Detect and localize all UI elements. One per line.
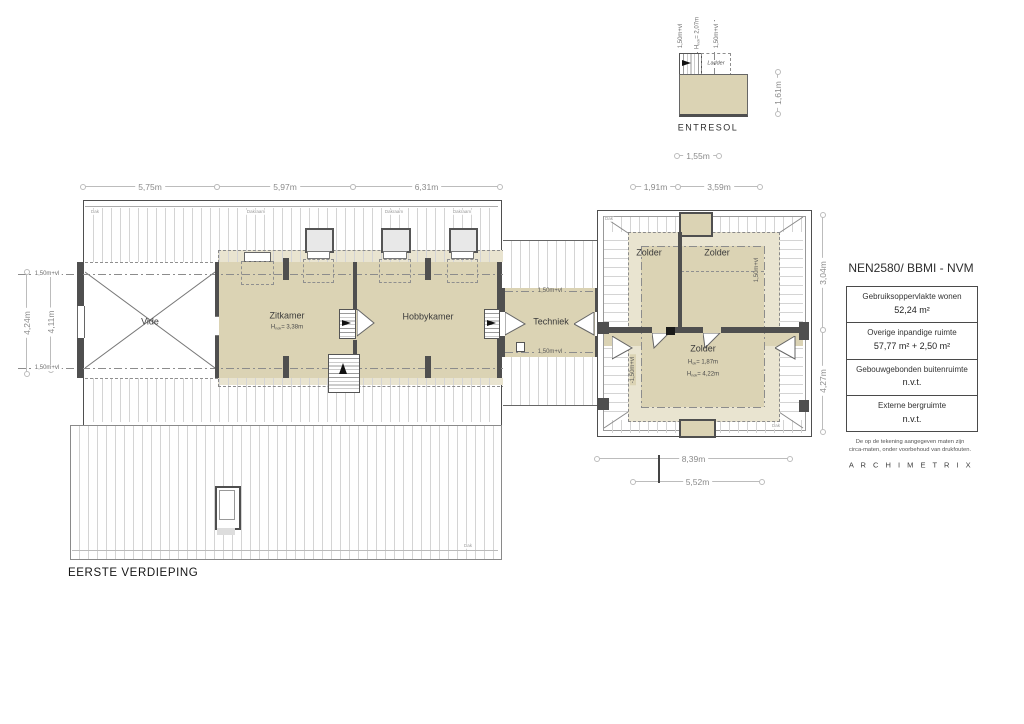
vide-label: Vide xyxy=(141,318,159,327)
zolder-main-label: Zolder xyxy=(690,345,716,354)
wall-segment xyxy=(598,398,609,410)
plan-title: EERSTE VERDIEPING xyxy=(68,567,198,579)
dimension-bottom-inner: 5,52m xyxy=(633,481,762,482)
roof-post xyxy=(283,356,289,378)
techniek-roof-lower xyxy=(503,357,597,406)
roof-window-dashed xyxy=(303,259,334,283)
chimney-base xyxy=(217,528,235,535)
roof-window-dashed xyxy=(447,259,478,283)
entresol-height-label: Hnok= 2,07m xyxy=(695,15,702,51)
vide-dashed-line xyxy=(85,378,218,379)
entresol-floor xyxy=(679,74,748,117)
table-row: Gebruiksoppervlakte wonen 52,24 m² xyxy=(847,287,977,323)
zitkamer-height-label: Hnok= 3,38m xyxy=(271,325,303,332)
floorplan-drawing: 1,50m+vl Hnok= 2,07m 1,50m+vl Ladder ENT… xyxy=(0,0,1024,724)
fixture-box xyxy=(516,342,525,352)
lower-roof xyxy=(70,425,502,560)
roof-window xyxy=(449,228,478,253)
roof-window xyxy=(381,228,411,253)
dimension-right-upper: 3,04m xyxy=(822,215,823,330)
brand-logo: A R C H I M E T R I X xyxy=(849,461,973,469)
vl-label-zolder-left: -1,50m+vl xyxy=(630,355,636,386)
vide-dashed-line xyxy=(85,262,218,263)
dakraam-label: Dakraam xyxy=(384,210,404,215)
techniek-label: Techniek xyxy=(533,318,569,327)
wall-segment xyxy=(799,322,809,340)
stair-direction-arrow xyxy=(682,60,691,66)
table-row: Overige inpandige ruimte 57,77 m² + 2,50… xyxy=(847,323,977,359)
roof-window-sill xyxy=(383,251,407,259)
stair-direction-arrow xyxy=(342,320,351,326)
row-value: n.v.t. xyxy=(849,413,975,427)
row-value: 57,77 m² + 2,50 m² xyxy=(849,340,975,354)
flue-box xyxy=(666,327,675,335)
dimension-top-3: 6,31m xyxy=(353,186,500,187)
dakraam-label: Dakraam xyxy=(452,210,472,215)
wall-opening xyxy=(215,316,219,336)
stair-direction-arrow xyxy=(487,320,496,326)
vl-label-left-bottom: 1,50m+vl xyxy=(33,365,62,371)
row-label: Externe bergruimte xyxy=(849,400,975,413)
vl-label-zolder-right: 1,50m+vl xyxy=(754,256,760,285)
entresol-width-dimension: 1,55m xyxy=(677,155,719,156)
dimension-top-1: 5,75m xyxy=(83,186,217,187)
disclaimer-line2: circa-maten, onder voorbehoud van drukfo… xyxy=(849,448,971,454)
zitkamer-label: Zitkamer xyxy=(269,312,304,321)
entresol-vl-label-left: 1,50m+vl xyxy=(678,22,684,51)
wall-segment xyxy=(799,400,809,412)
entresol-title: ENTRESOL xyxy=(678,124,739,133)
dimension-reference-tick xyxy=(658,455,660,483)
zolder-dividing-wall xyxy=(678,232,682,327)
roof-window-sill xyxy=(451,251,474,259)
dimension-topright-2: 3,59m xyxy=(678,186,760,187)
door-swing xyxy=(574,312,595,336)
nen2580-table: Gebruiksoppervlakte wonen 52,24 m² Overi… xyxy=(846,286,978,432)
roof-window xyxy=(305,228,334,253)
roof-window-dashed xyxy=(241,261,274,285)
entresol-vl-label-right: 1,50m+vl xyxy=(714,22,720,51)
table-row: Gebouwgebonden buitenruimte n.v.t. xyxy=(847,360,977,396)
roof-post xyxy=(425,258,431,280)
dakraam-label: Dakraam xyxy=(246,210,266,215)
chimney-inner xyxy=(219,490,235,520)
roof-window-dashed xyxy=(379,259,411,283)
dak-label: Dak xyxy=(771,424,781,429)
zolder-tr-label: Zolder xyxy=(704,249,730,258)
dimension-left-outer: 4,24m xyxy=(26,272,27,374)
legend-title: NEN2580/ BBMI - NVM xyxy=(848,262,973,274)
wall-segment xyxy=(598,322,609,334)
roof-eave-line xyxy=(85,206,498,207)
ladder-label: Ladder xyxy=(707,61,724,67)
zolder-tl-label: Zolder xyxy=(636,249,662,258)
height-line-150 xyxy=(641,407,764,408)
dimension-right-lower: 4,27m xyxy=(822,330,823,432)
vl-label-techniek-bottom: 1,50m+vl xyxy=(536,349,565,355)
dak-label: Dak xyxy=(604,217,614,222)
roof-window-sill xyxy=(307,251,330,259)
door-swing xyxy=(505,312,526,336)
row-label: Gebruiksoppervlakte wonen xyxy=(849,291,975,304)
row-value: 52,24 m² xyxy=(849,304,975,318)
row-label: Overige inpandige ruimte xyxy=(849,327,975,340)
dak-label: Dak xyxy=(463,544,473,549)
dimension-top-2: 5,97m xyxy=(217,186,353,187)
zolder-height-label-2: Hnok= 4,22m xyxy=(687,372,719,379)
zolder-height-label-1: Hok= 1,87m xyxy=(688,360,718,367)
dak-label: Dak xyxy=(90,210,100,215)
techniek-roof-upper xyxy=(503,240,597,289)
dimension-left-inner: 4,11m xyxy=(50,274,51,370)
disclaimer-line1: De op de tekening aangegeven maten zijn xyxy=(856,440,965,446)
dimension-topright-1: 1,91m xyxy=(633,186,678,187)
zolder-dormer-top xyxy=(679,212,713,237)
dimension-bottom-outer: 8,39m xyxy=(597,458,790,459)
entresol-depth-dimension: 1,61m xyxy=(777,72,778,114)
door-swing xyxy=(357,309,375,337)
roof-post xyxy=(425,356,431,378)
roof-post xyxy=(283,258,289,280)
vl-label-techniek-top: 1,50m+vl xyxy=(536,288,565,294)
zolder-dormer-bottom xyxy=(679,419,716,438)
table-row: Externe bergruimte n.v.t. xyxy=(847,396,977,431)
row-label: Gebouwgebonden buitenruimte xyxy=(849,364,975,377)
left-facade-window xyxy=(77,306,85,338)
row-value: n.v.t. xyxy=(849,376,975,390)
hobbykamer-label: Hobbykamer xyxy=(402,313,453,322)
door-swing xyxy=(652,333,670,349)
door-swing xyxy=(775,336,796,360)
lower-roof-gutter-line xyxy=(72,550,498,551)
vl-label-left-top: 1,50m+vl xyxy=(33,271,62,277)
stair-up-arrow xyxy=(339,363,347,374)
zolder-dashed-divider xyxy=(681,271,764,272)
